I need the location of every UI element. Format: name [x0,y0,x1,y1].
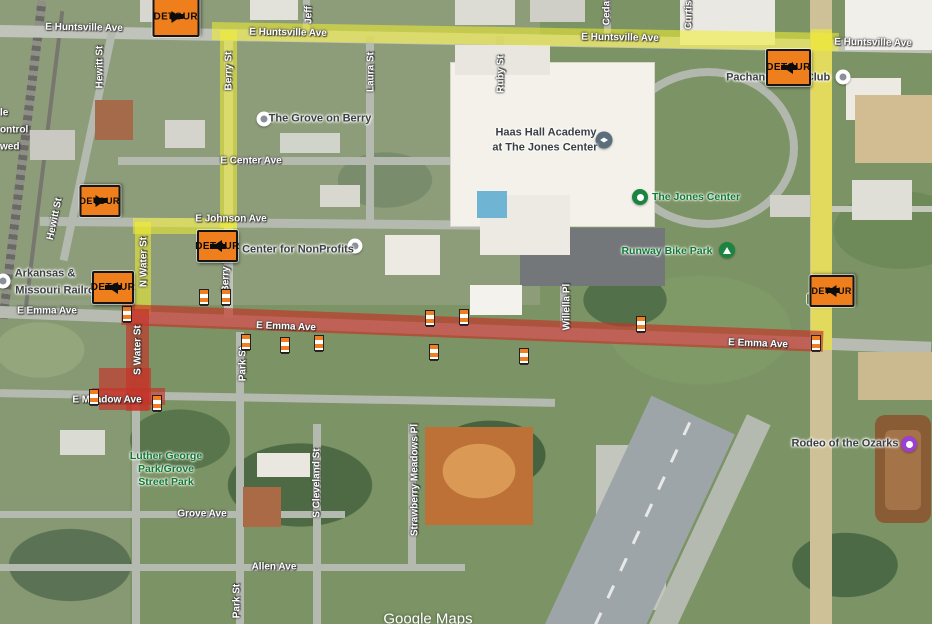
street-label-swater: S Water St [132,325,144,375]
street-label-huntsville-c1: E Huntsville Ave [249,27,327,40]
detour-sign-hewitt: DETOUR [80,185,121,217]
street-label-willella: Willella Pl [561,284,573,331]
clipped-label-line1: le [0,107,8,119]
street-label-allen: Allen Ave [252,561,297,573]
poi-dot [0,278,7,285]
traffic-drum [199,289,209,305]
detour-sign-label: DETOUR [80,196,120,206]
clipped-label-line3: wed [0,141,19,153]
traffic-drum [152,395,162,411]
traffic-drum [459,309,469,325]
street-label-meadow: E Meadow Ave [72,394,141,406]
poi-dot [261,116,268,123]
dirt-patch [858,352,932,400]
building [250,0,298,20]
building [257,453,310,477]
poi-label-grove-on-berry: The Grove on Berry [269,113,372,126]
building [852,180,912,220]
road [132,400,140,624]
street-label-emma-c: E Emma Ave [256,320,316,334]
poi-label-rodeo: Rodeo of the Ozarks [792,438,899,451]
street-label-johnson: E Johnson Ave [195,213,267,225]
detour-sign-label: DETOUR [154,12,198,23]
street-label-park-n: Park St [237,347,249,381]
poi-label-railroad-line1: Arkansas & [15,268,76,281]
street-label-park-s: Park St [231,584,243,618]
arrow-shaft [210,244,226,249]
street-label-cleveland: S Cleveland St [311,448,323,517]
poi-dot [637,194,644,201]
poi-label-runway-bike-park: Runway Bike Park [621,245,712,257]
traffic-drum [811,335,821,351]
detour-sign-label: DETOUR [812,286,852,296]
street-label-ruby: Ruby St [495,55,507,93]
street-label-strawberry: Strawberry Meadows Pl [409,424,421,536]
traffic-drum [519,348,529,364]
road [0,564,465,571]
building [30,130,75,160]
building [455,0,515,25]
street-label-laura: Laura St [365,52,377,92]
urban-wash [0,300,130,624]
building [470,285,522,315]
poi-dot [840,74,847,81]
traffic-drum [241,334,251,350]
building [530,0,585,22]
building [320,185,360,207]
street-label-cedar-clipped: Ceda [601,1,613,25]
traffic-drum [425,310,435,326]
traffic-drum [122,306,132,322]
road [0,511,345,518]
poi-marker-pachanga[interactable] [836,70,851,85]
detour-sign-johnson: DETOUR [197,230,238,262]
poi-label-jones-center: The Jones Center [652,191,740,203]
traffic-drum [314,335,324,351]
detour-sign-emma-west: DETOUR [92,271,134,304]
poi-label-nonprofits: Center for NonProfits [242,244,354,257]
construction-site [425,427,533,525]
traffic-drum [221,289,231,305]
pool [477,191,507,218]
poi-marker-rodeo[interactable] [901,436,917,452]
street-label-curtis-clipped: Curtis [683,1,695,30]
poi-label-luther-line3: Street Park [138,476,193,488]
graduation-cap-icon [600,138,608,143]
building [280,133,340,153]
street-label-huntsville-c2: E Huntsville Ave [581,32,659,45]
building [243,487,281,527]
building [60,430,105,455]
street-label-emma-e: E Emma Ave [728,337,788,351]
satellite-map[interactable]: DETOUR DETOUR DETOUR DETOUR DETOUR DETOU… [0,0,932,624]
building [385,235,440,275]
arrow-shaft [105,285,121,290]
clipped-label-line2: ontrol [0,124,28,136]
street-label-emma-w: E Emma Ave [17,305,77,317]
poi-marker-haas-hall[interactable] [596,132,613,149]
traffic-drum [280,337,290,353]
building [95,100,133,140]
map-attribution[interactable]: Google Maps [383,610,472,624]
tree-icon [723,247,731,254]
street-label-huntsville-w: E Huntsville Ave [45,22,123,35]
building [165,120,205,148]
street-label-huntsville-e: E Huntsville Ave [834,37,912,50]
traffic-drum [636,316,646,332]
traffic-drum [89,389,99,405]
street-label-berry-n: Berry St [223,52,235,91]
poi-marker-runway-bike-park[interactable] [719,242,735,258]
poi-marker-jones-center[interactable] [632,189,648,205]
street-label-jefferson-clipped: Jeff [303,6,315,24]
dirt-patch [855,95,932,163]
street-label-center-ave: E Center Ave [220,155,282,167]
street-label-grove: Grove Ave [177,508,226,520]
poi-label-haas-line2: at The Jones Center [492,142,597,155]
poi-label-haas-line1: Haas Hall Academy [495,127,596,140]
poi-label-luther-line2: Park/Grove [138,463,194,475]
building [770,195,810,217]
traffic-drum [429,344,439,360]
street-label-nwater: N Water St [138,237,150,287]
poi-dot [906,441,913,448]
poi-label-luther-line1: Luther George [130,450,202,462]
detour-sign-north-berry: DETOUR [153,0,200,37]
detour-sign-northeast: DETOUR [766,49,811,86]
detour-sign-emma-east: DETOUR [810,275,855,307]
street-label-hewitt-n: Hewitt St [94,46,106,89]
arrow-shaft [781,65,797,70]
poi-label-railroad-line2: Missouri Railroa [15,285,101,298]
